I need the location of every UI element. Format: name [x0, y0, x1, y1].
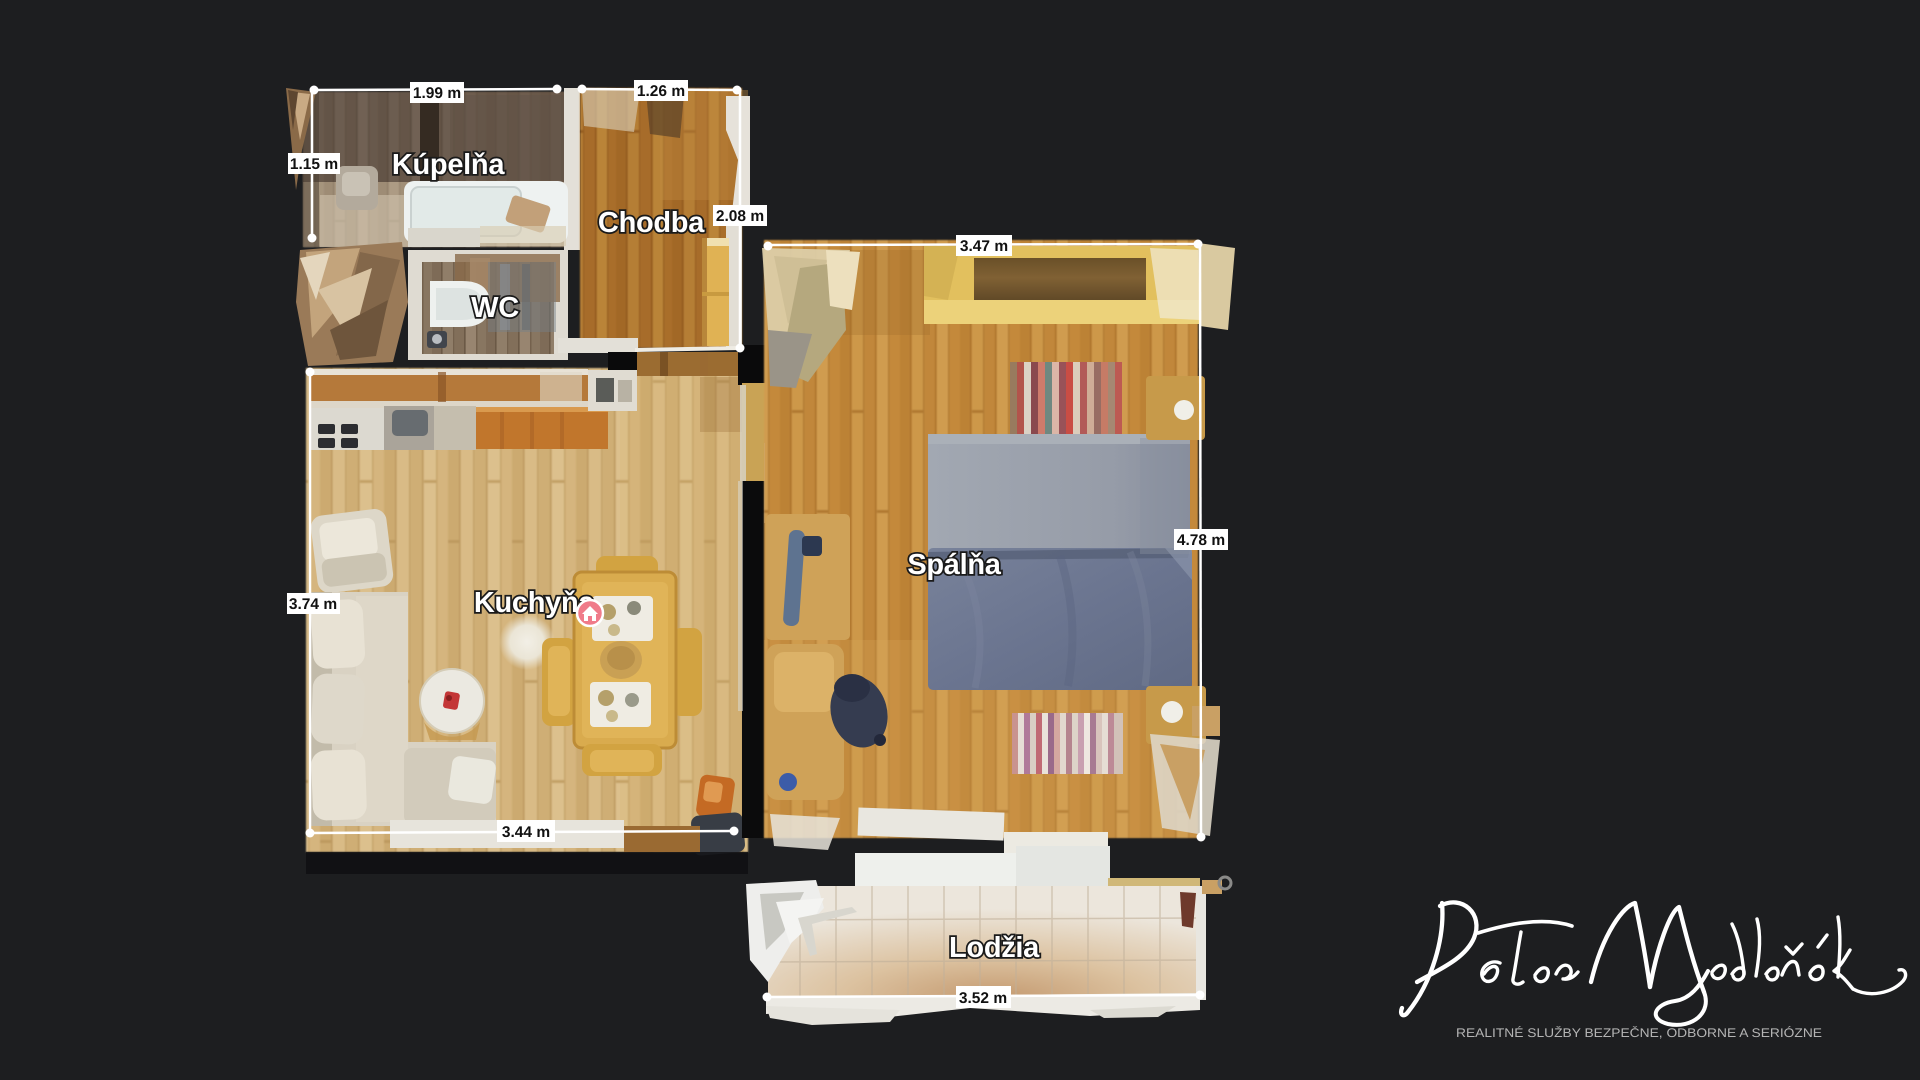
- svg-text:3.44 m: 3.44 m: [502, 824, 550, 841]
- svg-text:3.74 m: 3.74 m: [289, 596, 337, 613]
- svg-text:WC: WC: [471, 292, 519, 324]
- svg-text:3.47 m: 3.47 m: [960, 238, 1008, 255]
- svg-text:1.26 m: 1.26 m: [637, 83, 685, 100]
- svg-text:4.78 m: 4.78 m: [1177, 532, 1225, 549]
- svg-text:Lodžia: Lodžia: [949, 932, 1040, 964]
- svg-text:1.15 m: 1.15 m: [290, 156, 338, 173]
- svg-text:Spálňa: Spálňa: [907, 549, 1001, 581]
- svg-text:Chodba: Chodba: [598, 207, 705, 239]
- svg-text:3.52 m: 3.52 m: [959, 990, 1007, 1007]
- svg-text:1.99 m: 1.99 m: [413, 85, 461, 102]
- svg-text:2.08 m: 2.08 m: [716, 208, 764, 225]
- svg-text:Kúpelňa: Kúpelňa: [392, 149, 505, 181]
- svg-text:REALITNÉ SLUŽBY BEZPEČNE, ODBO: REALITNÉ SLUŽBY BEZPEČNE, ODBORNE A SERI…: [1456, 1026, 1822, 1040]
